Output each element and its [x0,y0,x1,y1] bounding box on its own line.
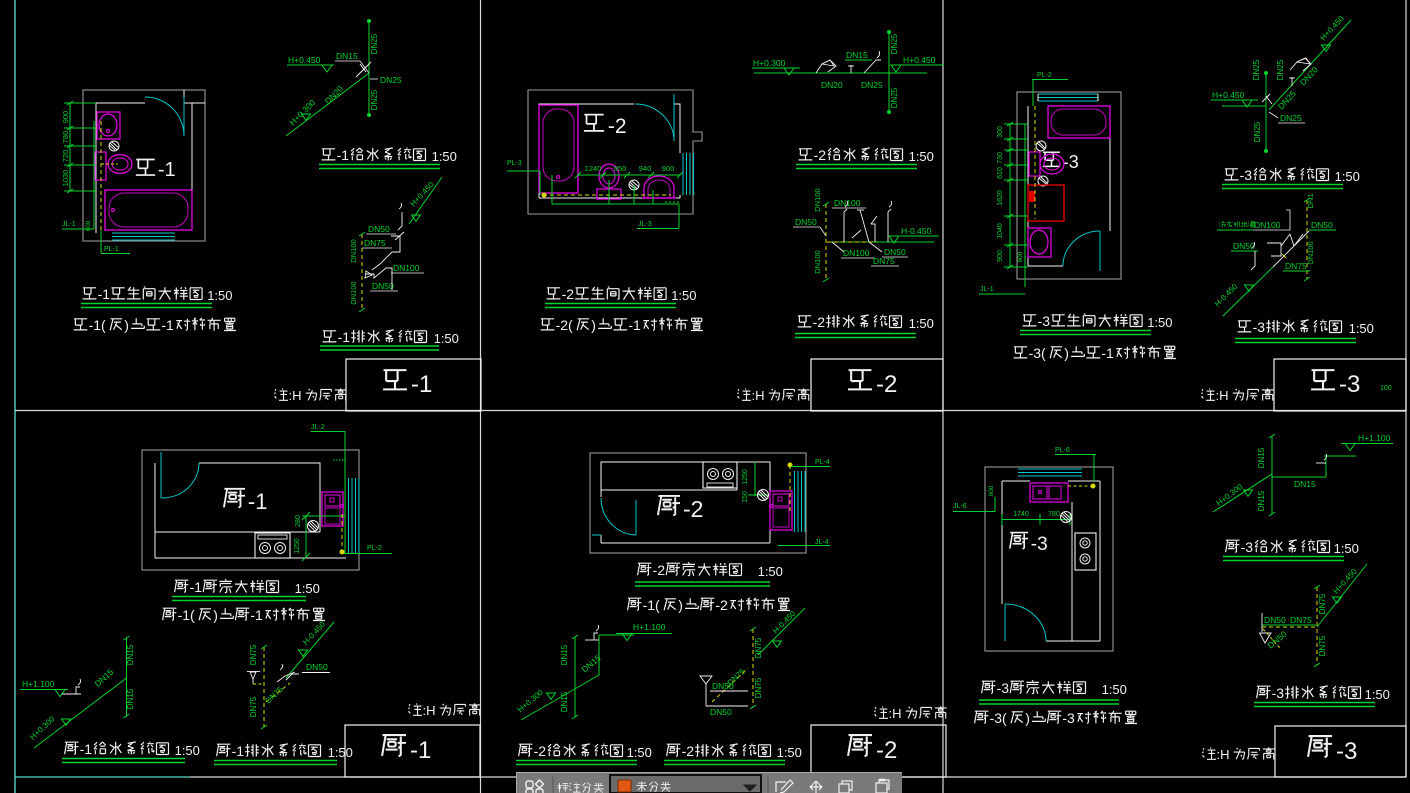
svg-text:-1: -1 [1101,345,1114,361]
svg-text:1040: 1040 [997,223,1004,239]
svg-text:900: 900 [997,250,1004,262]
svg-text:-3(: -3( [990,710,1007,726]
svg-text:900: 900 [662,164,675,173]
svg-text:600: 600 [988,485,995,496]
svg-text:DN75: DN75 [873,256,895,266]
svg-text:-1: -1 [411,371,432,398]
svg-text:1:50: 1:50 [1102,682,1127,697]
svg-text:940: 940 [639,164,652,173]
svg-text:PL-2: PL-2 [1037,72,1052,79]
svg-text:JL-3: JL-3 [638,221,652,228]
svg-text:DN1: DN1 [1306,193,1315,208]
svg-text:DN50: DN50 [368,224,390,234]
svg-text:-2: -2 [876,737,897,764]
svg-text:300: 300 [997,126,1004,138]
svg-text:DN15: DN15 [1294,479,1316,489]
svg-text:950: 950 [614,164,627,173]
svg-text:DN100: DN100 [393,263,420,273]
svg-text:-1(: -1( [89,317,106,333]
svg-text:-3: -3 [1031,534,1048,555]
svg-text:DN75: DN75 [364,238,386,248]
svg-text:): ) [591,317,596,333]
svg-text:-1: -1 [250,607,263,623]
svg-text:DN100: DN100 [1254,220,1281,230]
svg-text:DN50: DN50 [1233,241,1255,251]
svg-text:PL-1: PL-1 [104,246,119,253]
svg-text:DN50: DN50 [712,681,734,691]
svg-text:JL-1: JL-1 [62,221,76,228]
svg-text:-2: -2 [813,314,826,330]
svg-text:DN50: DN50 [1311,220,1333,230]
svg-text:-3: -3 [997,680,1010,696]
svg-text:1:50: 1:50 [432,149,457,164]
svg-text:1:50: 1:50 [328,745,353,760]
svg-text:DN75: DN75 [754,677,763,698]
svg-text:-1: -1 [337,147,350,163]
svg-text:PL-6: PL-6 [1055,447,1070,454]
svg-text:-1: -1 [628,317,641,333]
svg-text:DN15: DN15 [126,644,135,665]
svg-text:-3: -3 [1063,152,1079,172]
svg-text:DN25: DN25 [861,80,883,90]
svg-text:-2: -2 [682,743,695,759]
svg-text:-1: -1 [410,737,431,764]
svg-text:DN25: DN25 [890,33,899,54]
svg-text:-1: -1 [80,741,93,757]
svg-text:DN100: DN100 [843,248,870,258]
svg-text:DN50: DN50 [710,707,732,717]
svg-text::H: :H [889,706,902,721]
svg-text::H: :H [1216,388,1229,403]
svg-text:1:50: 1:50 [909,316,934,331]
svg-text:1:50: 1:50 [207,288,232,303]
svg-text:600: 600 [85,220,92,231]
svg-text:DN100: DN100 [813,188,822,211]
svg-text:150: 150 [742,491,749,503]
svg-text:DN25: DN25 [1252,59,1261,80]
svg-text:610: 610 [997,167,1004,179]
svg-text:730: 730 [997,152,1004,164]
svg-text:DN75: DN75 [249,644,258,665]
svg-text:-1: -1 [158,159,176,181]
svg-text:-3: -3 [1062,710,1075,726]
svg-text:780: 780 [1048,511,1060,518]
svg-text:-2: -2 [653,562,666,578]
svg-text:1:50: 1:50 [671,288,696,303]
svg-text:-3: -3 [1240,167,1253,183]
svg-text:-3: -3 [1272,685,1285,701]
svg-text:H+1.100: H+1.100 [633,622,666,632]
svg-text:DN20: DN20 [821,80,843,90]
svg-text:): ) [124,317,129,333]
svg-text:PL-2: PL-2 [367,545,382,552]
svg-text:): ) [213,607,218,623]
svg-text:H+0.450: H+0.450 [1212,90,1245,100]
svg-text:280: 280 [295,515,302,527]
svg-text:): ) [678,597,683,613]
svg-text:600: 600 [1017,251,1024,262]
svg-text:1240: 1240 [585,164,602,173]
svg-text:-1: -1 [190,579,203,595]
svg-text:DN100: DN100 [349,239,358,262]
svg-text:JL-4: JL-4 [815,539,829,546]
svg-text:DN25: DN25 [1276,59,1285,80]
svg-text:DN25: DN25 [1280,113,1302,123]
svg-text:-3: -3 [1339,371,1360,398]
svg-text:DN75: DN75 [1318,635,1327,656]
svg-text:DN25: DN25 [370,33,379,54]
svg-text:-1: -1 [248,489,268,514]
svg-text:-1: -1 [232,743,245,759]
svg-text:H-0.450: H-0.450 [901,226,932,236]
svg-text::H: :H [752,388,765,403]
svg-text:DN100: DN100 [1306,241,1315,264]
svg-text:JL-1: JL-1 [980,286,994,293]
svg-text:-1: -1 [98,286,111,302]
svg-text:DN75: DN75 [1285,261,1307,271]
svg-text:-3: -3 [1038,313,1051,329]
svg-text:-3: -3 [1241,539,1254,555]
svg-text:DN50: DN50 [372,281,394,291]
svg-text:100: 100 [1380,385,1392,392]
svg-text:1:50: 1:50 [295,581,320,596]
svg-text:-2: -2 [562,286,575,302]
svg-text:1620: 1620 [997,190,1004,206]
svg-text:1:50: 1:50 [1147,315,1172,330]
svg-text:-2: -2 [534,743,547,759]
svg-text:DN75: DN75 [249,696,258,717]
svg-text:DN15: DN15 [560,644,569,665]
svg-text:-1: -1 [161,317,174,333]
svg-text:1:50: 1:50 [1335,169,1360,184]
svg-text:DN100: DN100 [813,250,822,273]
svg-text:1:50: 1:50 [1365,687,1390,702]
svg-text:PL-3: PL-3 [507,160,522,167]
svg-text:-3: -3 [1336,738,1357,765]
svg-text:1:50: 1:50 [175,743,200,758]
svg-text:H+0.450: H+0.450 [288,55,321,65]
svg-text:DN15: DN15 [1257,447,1266,468]
svg-text:DN100: DN100 [349,281,358,304]
svg-text:DN75: DN75 [1290,615,1312,625]
svg-text:DN15: DN15 [336,51,358,61]
svg-text:DN50: DN50 [795,217,817,227]
svg-text:DN15: DN15 [846,50,868,60]
svg-text:PL-4: PL-4 [815,459,830,466]
svg-text:1:50: 1:50 [909,149,934,164]
svg-text:-2: -2 [608,115,627,138]
svg-text:JL-2: JL-2 [311,424,325,431]
svg-text:-1(: -1( [643,597,660,613]
svg-text:JL-6: JL-6 [953,503,967,510]
svg-text:-1: -1 [338,329,351,345]
svg-text:1740: 1740 [1013,511,1029,518]
svg-text:DN15: DN15 [1257,490,1266,511]
svg-text:-2: -2 [814,147,827,163]
svg-text:-2: -2 [683,496,703,522]
svg-text:H+1.100: H+1.100 [1358,433,1391,443]
svg-text:): ) [1064,345,1069,361]
svg-text:-2: -2 [715,597,728,613]
svg-text:H+1.100: H+1.100 [22,679,55,689]
svg-text:H+0.300: H+0.300 [753,58,786,68]
svg-text:720: 720 [61,150,70,163]
svg-text:1030: 1030 [61,170,70,187]
svg-text:DN50: DN50 [306,662,328,672]
svg-text:1:50: 1:50 [758,564,783,579]
svg-text:DN75: DN75 [1318,593,1327,614]
svg-text:DN25: DN25 [1253,121,1262,142]
svg-text:1250: 1250 [294,538,301,554]
svg-text:900: 900 [61,111,70,124]
svg-text:1:50: 1:50 [777,745,802,760]
svg-text:1:50: 1:50 [627,745,652,760]
svg-text:-1(: -1( [178,607,195,623]
svg-text::H: :H [1217,747,1230,762]
svg-text:1250: 1250 [742,469,749,485]
svg-text:DN25: DN25 [370,89,379,110]
svg-text::H: :H [289,388,302,403]
svg-text:-2(: -2( [556,317,573,333]
svg-text:-3: -3 [1253,319,1266,335]
svg-text:-2: -2 [876,371,897,398]
svg-text:): ) [1025,710,1030,726]
svg-text::H: :H [423,703,436,718]
svg-text:1:50: 1:50 [1334,541,1359,556]
svg-text:-3(: -3( [1029,345,1046,361]
svg-text:DN50: DN50 [1264,615,1286,625]
svg-text:H+0.450: H+0.450 [903,55,936,65]
svg-text:1:50: 1:50 [434,331,459,346]
svg-text:1:50: 1:50 [1349,321,1374,336]
svg-text:DN25: DN25 [380,75,402,85]
svg-text:DN15: DN15 [126,688,135,709]
svg-text:780: 780 [61,131,70,144]
svg-text:DN25: DN25 [890,87,899,108]
